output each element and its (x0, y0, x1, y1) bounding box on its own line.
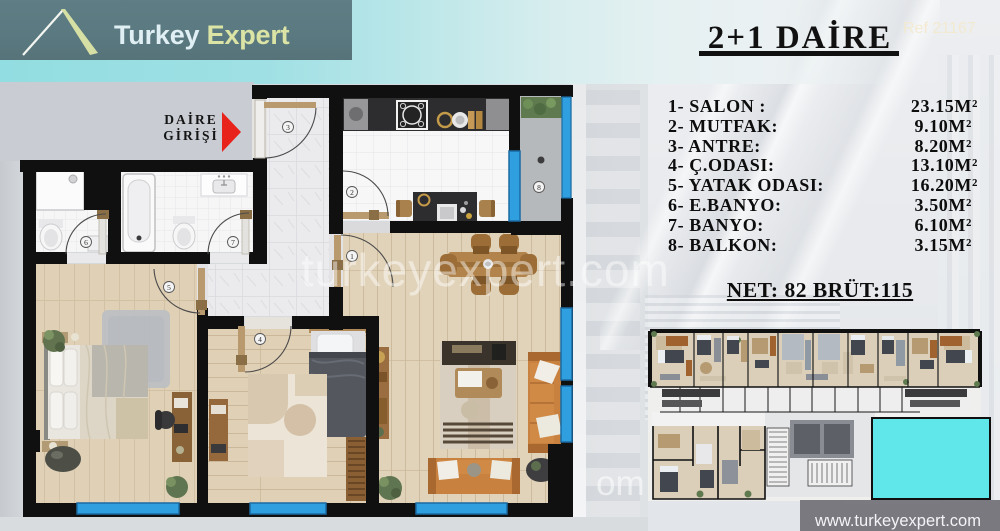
svg-text:7: 7 (231, 238, 235, 247)
svg-text:8: 8 (537, 183, 541, 192)
svg-text:3: 3 (286, 123, 290, 132)
svg-text:2: 2 (350, 188, 354, 197)
svg-text:5: 5 (167, 283, 171, 292)
svg-text:6: 6 (84, 238, 88, 247)
svg-text:4: 4 (258, 335, 262, 344)
